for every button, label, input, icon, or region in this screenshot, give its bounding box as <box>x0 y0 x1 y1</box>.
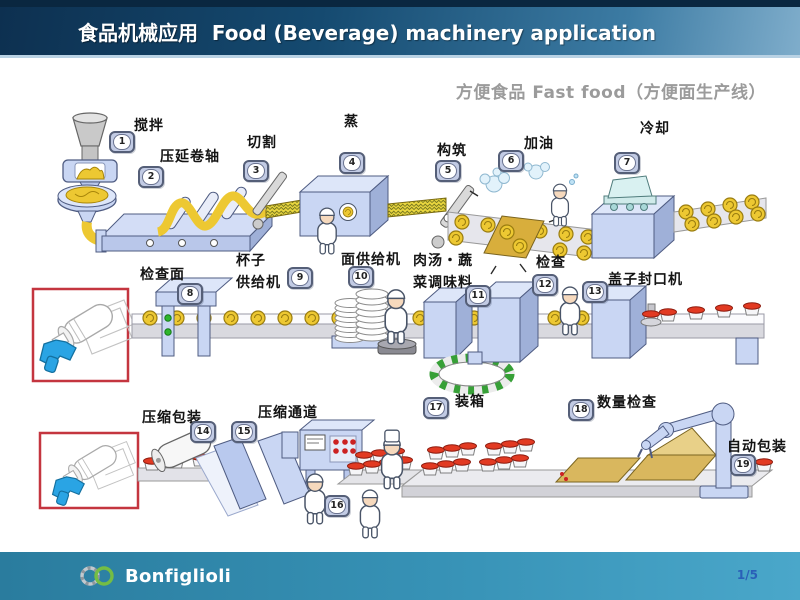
step-badge-15: 15 <box>231 421 257 443</box>
step-label-18: 数量检查 <box>597 393 657 415</box>
step-label-3: 切割 <box>247 133 277 155</box>
cup-stacks <box>332 289 392 348</box>
step-label-11: 肉汤・蔬 菜调味料 <box>413 251 473 294</box>
step-number: 16 <box>328 498 346 514</box>
worker-steamer <box>318 208 336 254</box>
step-number: 8 <box>181 286 199 302</box>
step-badge-14: 14 <box>190 421 216 443</box>
step-badge-8: 8 <box>177 283 203 305</box>
noodle-sheet-belt-1 <box>266 200 302 218</box>
step-label-4: 蒸 <box>344 112 359 134</box>
step-badge-4: 4 <box>339 152 365 174</box>
step-badge-13: 13 <box>582 281 608 303</box>
step-number: 4 <box>343 155 361 171</box>
edge-cup <box>756 459 773 471</box>
step-number: 5 <box>439 163 457 179</box>
step-label-17: 装箱 <box>455 392 485 414</box>
gearmotor-callout-1 <box>33 289 134 381</box>
step-number: 17 <box>427 400 445 416</box>
step-label-13: 盖子封口机 <box>608 270 683 292</box>
step-label-9: 杯子 供给机 <box>236 251 281 294</box>
step-label-15: 压缩通道 <box>258 403 318 425</box>
step-badge-5: 5 <box>435 160 461 182</box>
step-number: 6 <box>502 153 520 169</box>
production-line-illustration <box>0 0 800 600</box>
worker-fryer <box>552 184 569 226</box>
step-number: 19 <box>734 457 752 473</box>
cartons <box>556 428 716 482</box>
step-number: 13 <box>586 284 604 300</box>
steam-box <box>300 176 388 254</box>
step-label-2: 压延卷轴 <box>160 147 220 169</box>
step-number: 9 <box>291 270 309 286</box>
step-badge-2: 2 <box>138 166 164 188</box>
step-number: 3 <box>247 163 265 179</box>
step-badge-3: 3 <box>243 160 269 182</box>
step-label-6: 加油 <box>524 134 554 156</box>
step-number: 7 <box>618 155 636 171</box>
step-badge-16: 16 <box>324 495 350 517</box>
step-badge-11: 11 <box>465 285 491 307</box>
step-label-7: 冷却 <box>640 119 670 141</box>
step-badge-7: 7 <box>614 152 640 174</box>
worker-packing-1 <box>305 474 325 524</box>
calender-roller-machine <box>96 185 272 252</box>
step-badge-17: 17 <box>423 397 449 419</box>
step-badge-19: 19 <box>730 454 756 476</box>
cooling-machine <box>592 176 674 258</box>
step-badge-6: 6 <box>498 150 524 172</box>
step-label-12: 检查 <box>536 253 566 275</box>
slide: 食品机械应用 Food (Beverage) machinery applica… <box>0 0 800 600</box>
step-badge-10: 10 <box>348 266 374 288</box>
step-number: 1 <box>113 134 131 150</box>
row1-exit-belt <box>674 195 766 232</box>
step-number: 2 <box>142 169 160 185</box>
step-number: 14 <box>194 424 212 440</box>
step-number: 11 <box>469 288 487 304</box>
step-number: 10 <box>352 269 370 285</box>
step-badge-1: 1 <box>109 131 135 153</box>
step-label-1: 搅拌 <box>134 116 164 138</box>
gearmotor-callout-2 <box>40 433 138 508</box>
step-number: 18 <box>572 402 590 418</box>
step-badge-18: 18 <box>568 399 594 421</box>
step-badge-12: 12 <box>532 274 558 296</box>
step-badge-9: 9 <box>287 267 313 289</box>
worker-packing-2 <box>360 490 379 538</box>
noodle-sheet-belt-2 <box>388 198 446 217</box>
step-number: 12 <box>536 277 554 293</box>
step-number: 15 <box>235 424 253 440</box>
